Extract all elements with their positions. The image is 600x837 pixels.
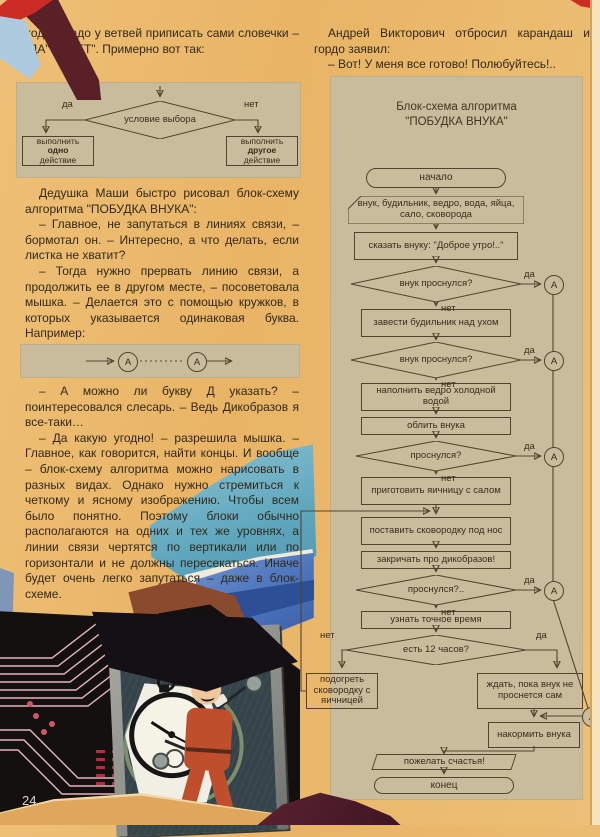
paragraph: – Главное, не запутаться в линиях связи,… xyxy=(25,217,299,264)
left-column-middle: Дедушка Маши быстро рисовал блок-схему а… xyxy=(25,186,299,342)
flow-connector-a-4: А xyxy=(544,581,564,601)
flow-process-alarm: завести будильник над ухом xyxy=(361,309,511,337)
flow-end: конец xyxy=(374,777,514,794)
paragraph: Дедушка Маши быстро рисовал блок-схему а… xyxy=(25,186,299,217)
yes-label: да xyxy=(536,630,547,641)
flow-decision-awake-2: внук проснулся? xyxy=(351,342,521,378)
flow-connector-a-3: А xyxy=(544,447,564,467)
flow-decision-awake-1: внук проснулся? xyxy=(351,266,521,302)
flow-process-feed: накормить внука xyxy=(488,722,580,748)
flow-process-eggs: приготовить яичницу с салом xyxy=(361,477,511,505)
flow-connector-a-2: А xyxy=(544,351,564,371)
flow-decision-awake-4: проснулся?.. xyxy=(356,575,516,605)
flow-process-reheat: подогреть сковородку с яичницей xyxy=(306,673,378,709)
flow-start: начало xyxy=(366,168,506,188)
intro-no-label: нет xyxy=(244,99,259,110)
no-label: нет xyxy=(441,607,456,618)
no-label: нет xyxy=(441,303,456,314)
page-edge xyxy=(590,0,600,825)
intro-yes-label: да xyxy=(62,99,73,110)
paragraph: – Да какую угодно! – разрешила мышка. – … xyxy=(25,431,299,603)
connector-example-panel xyxy=(20,344,300,378)
no-label: нет xyxy=(441,379,456,390)
flow-connector-a-1: А xyxy=(544,275,564,295)
yes-label: да xyxy=(524,575,535,586)
flowchart-title: Блок-схема алгоритма "ПОБУДКА ВНУКА" xyxy=(330,100,583,130)
yes-label: да xyxy=(524,345,535,356)
flow-process-pan-nose: поставить сковородку под нос xyxy=(361,517,511,545)
flow-process-bucket: наполнить ведро холодной водой xyxy=(361,383,511,411)
yes-label: да xyxy=(524,269,535,280)
flow-process-pour: облить внука xyxy=(361,417,511,435)
intro-right-action-box: выполнить другое действие xyxy=(226,136,298,166)
left-column-bottom: – А можно ли букву Д указать? – поинтере… xyxy=(25,384,299,602)
connector-circle-a: А xyxy=(118,352,138,372)
character-jacket xyxy=(184,707,234,772)
intro-condition-label: условие выбора xyxy=(110,115,210,126)
paragraph: – А можно ли букву Д указать? – поинтере… xyxy=(25,384,299,431)
flow-process-time: узнать точное время xyxy=(361,611,511,629)
flow-process-shout: закричать про дикобразов! xyxy=(361,551,511,569)
book-page: { "page": {"number": "24"}, "left_column… xyxy=(0,0,600,825)
no-label: нет xyxy=(441,473,456,484)
intro-left-action-box: выполнить одно действие xyxy=(22,136,94,166)
paragraph: – Тогда нужно прервать линию связи, а пр… xyxy=(25,264,299,342)
paragraph: Андрей Викторович отбросил карандаш и го… xyxy=(314,26,590,57)
flow-data-block: внук, будильник, ведро, вода, яйца, сало… xyxy=(348,196,524,224)
flow-process-say: сказать внуку: "Доброе утро!.." xyxy=(354,232,518,260)
flow-decision-awake-3: проснулся? xyxy=(356,441,516,471)
flow-process-wait: ждать, пока внук не проснется сам xyxy=(477,673,583,709)
right-column-text: Андрей Викторович отбросил карандаш и го… xyxy=(314,26,590,73)
paragraph: – Вот! У меня все готово! Полюбуйтесь!.. xyxy=(314,57,590,73)
flow-decision-12-oclock: есть 12 часов? xyxy=(346,635,526,665)
yes-label: да xyxy=(524,441,535,452)
intro-condition-diamond: условие выбора xyxy=(85,101,235,139)
no-label: нет xyxy=(320,630,335,641)
connector-circle-a: А xyxy=(187,352,207,372)
flow-io-wish: пожелать счастья! xyxy=(371,754,516,770)
